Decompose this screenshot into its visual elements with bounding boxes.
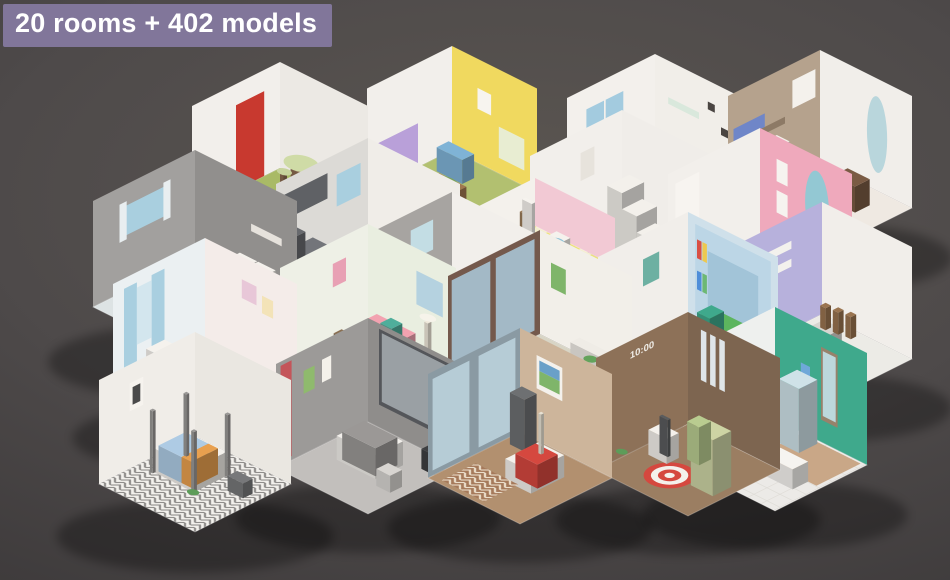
rooms-layer: 10:00 [93,46,912,532]
render-stage: 20 rooms + 402 models [0,0,950,580]
models-count-badge: 20 rooms + 402 models [3,4,332,47]
badge-label: 20 rooms + 402 models [15,8,317,38]
dollhouse-scene-render: 10:00 [0,0,950,580]
